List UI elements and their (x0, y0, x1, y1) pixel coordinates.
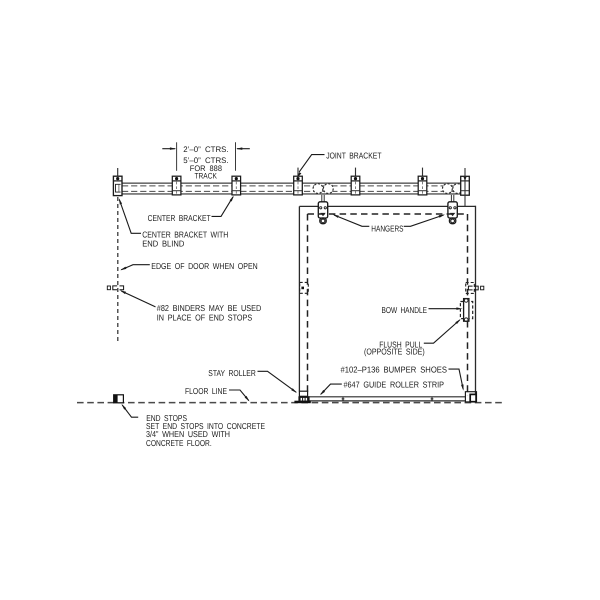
svg-text:CONCRETE FLOOR.: CONCRETE FLOOR. (146, 438, 212, 448)
svg-text:STAY ROLLER: STAY ROLLER (208, 368, 256, 378)
svg-text:#647 GUIDE ROLLER STRIP: #647 GUIDE ROLLER STRIP (344, 380, 445, 390)
svg-text:TRACK: TRACK (195, 171, 218, 180)
svg-text:CENTER BRACKET: CENTER BRACKET (148, 213, 212, 223)
svg-text:IN PLACE OF END STOPS: IN PLACE OF END STOPS (157, 312, 253, 322)
svg-text:#102–P136 BUMPER SHOES: #102–P136 BUMPER SHOES (341, 365, 448, 375)
svg-text:2’–0” CTRS.: 2’–0” CTRS. (183, 145, 228, 154)
svg-text:HANGERS: HANGERS (371, 223, 403, 233)
svg-text:BOW HANDLE: BOW HANDLE (382, 305, 428, 315)
svg-text:JOINT BRACKET: JOINT BRACKET (326, 151, 382, 161)
svg-text:END BLIND: END BLIND (142, 239, 184, 249)
svg-text:(OPPOSITE SIDE): (OPPOSITE SIDE) (364, 346, 425, 356)
svg-text:EDGE OF DOOR WHEN OPEN: EDGE OF DOOR WHEN OPEN (151, 261, 257, 271)
svg-text:FLOOR LINE: FLOOR LINE (185, 386, 227, 396)
